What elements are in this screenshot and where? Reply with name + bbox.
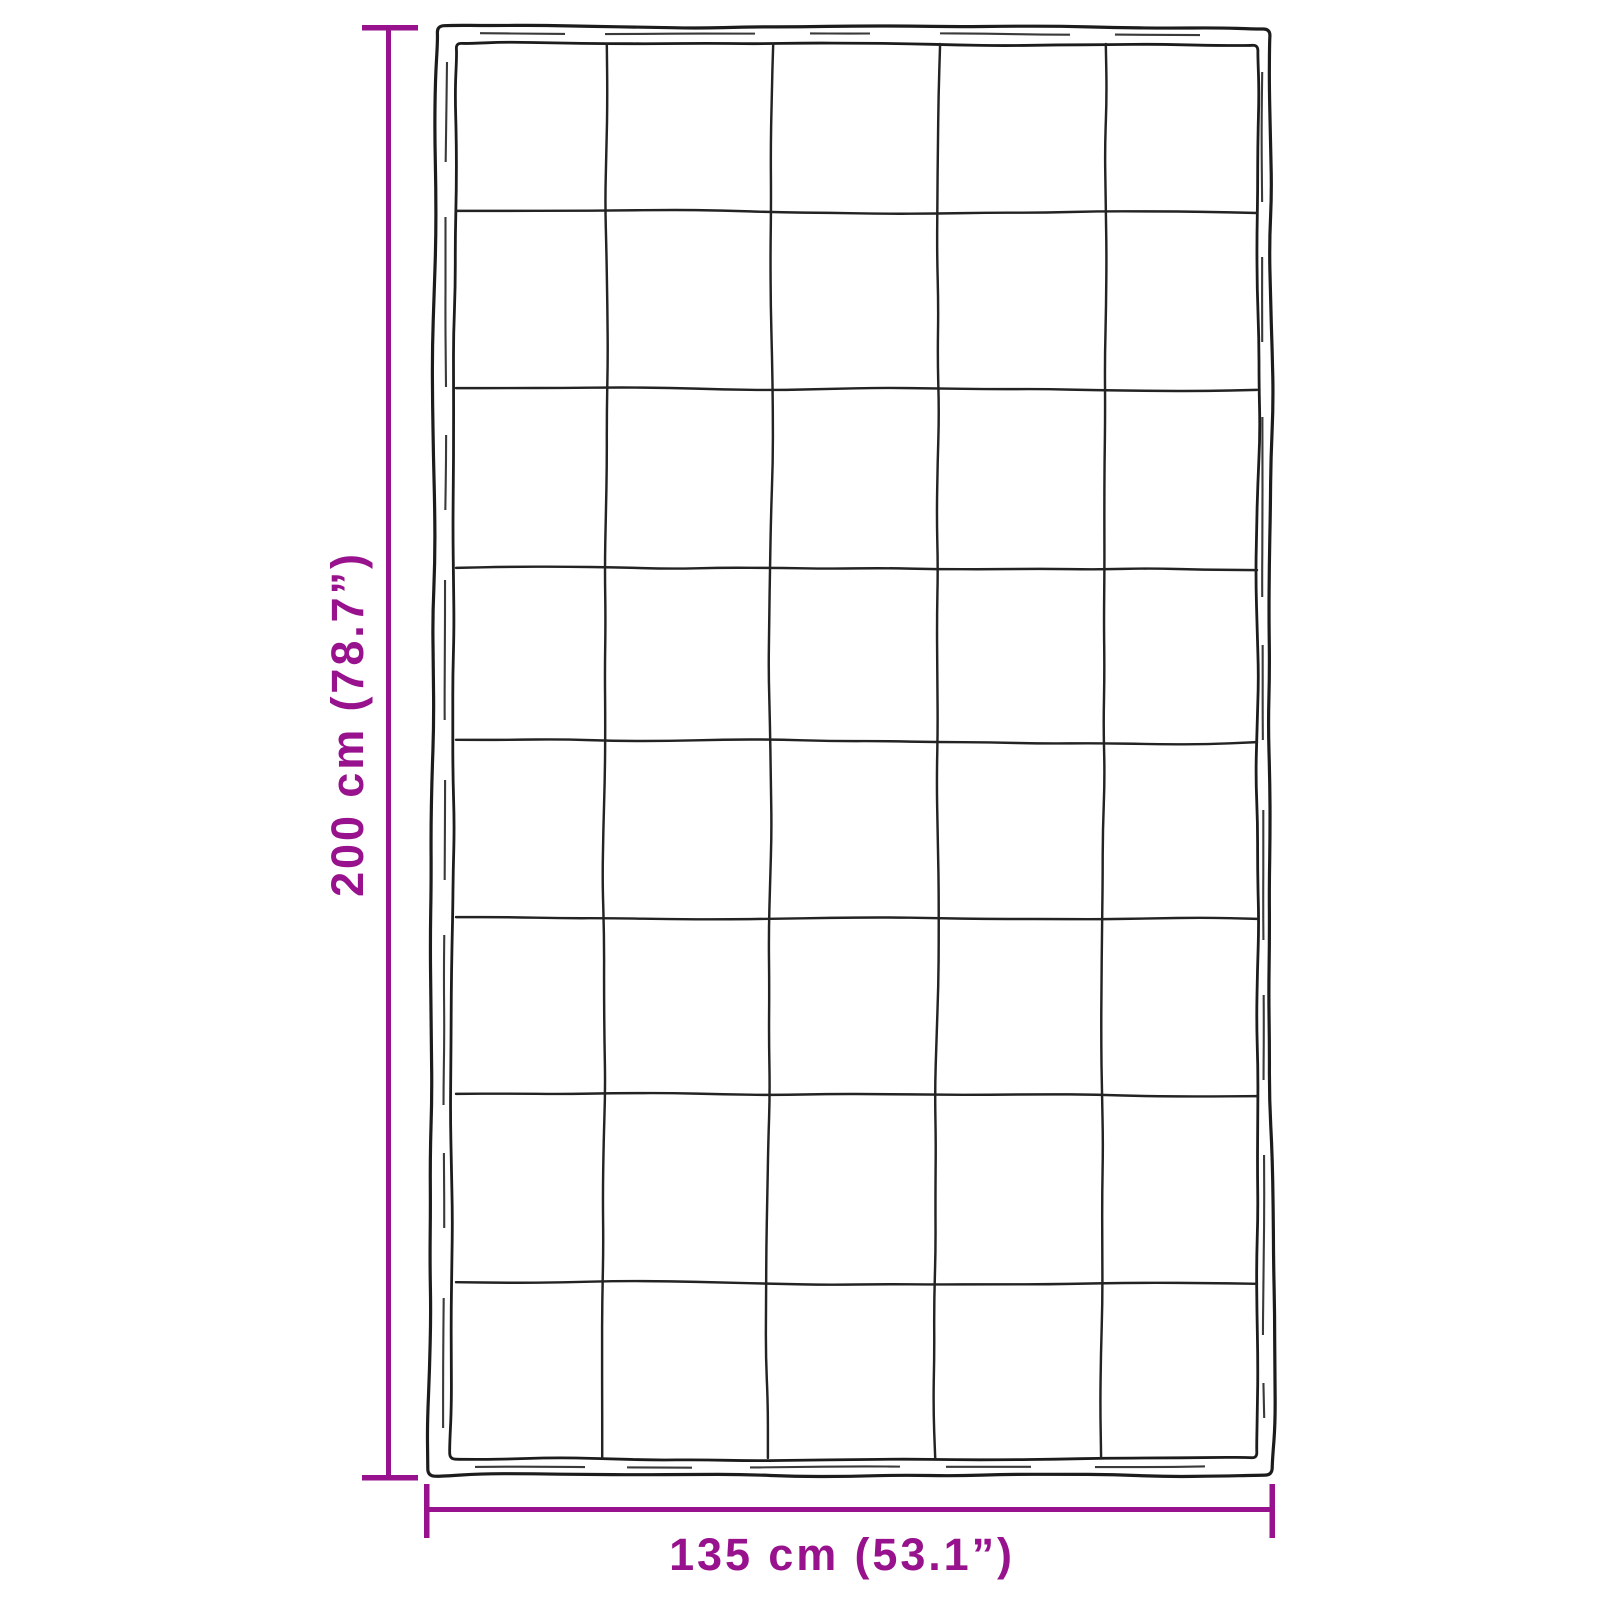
svg-text:200 cm (78.7”): 200 cm (78.7”) (322, 551, 373, 897)
svg-text:135 cm (53.1”): 135 cm (53.1”) (669, 1529, 1015, 1580)
